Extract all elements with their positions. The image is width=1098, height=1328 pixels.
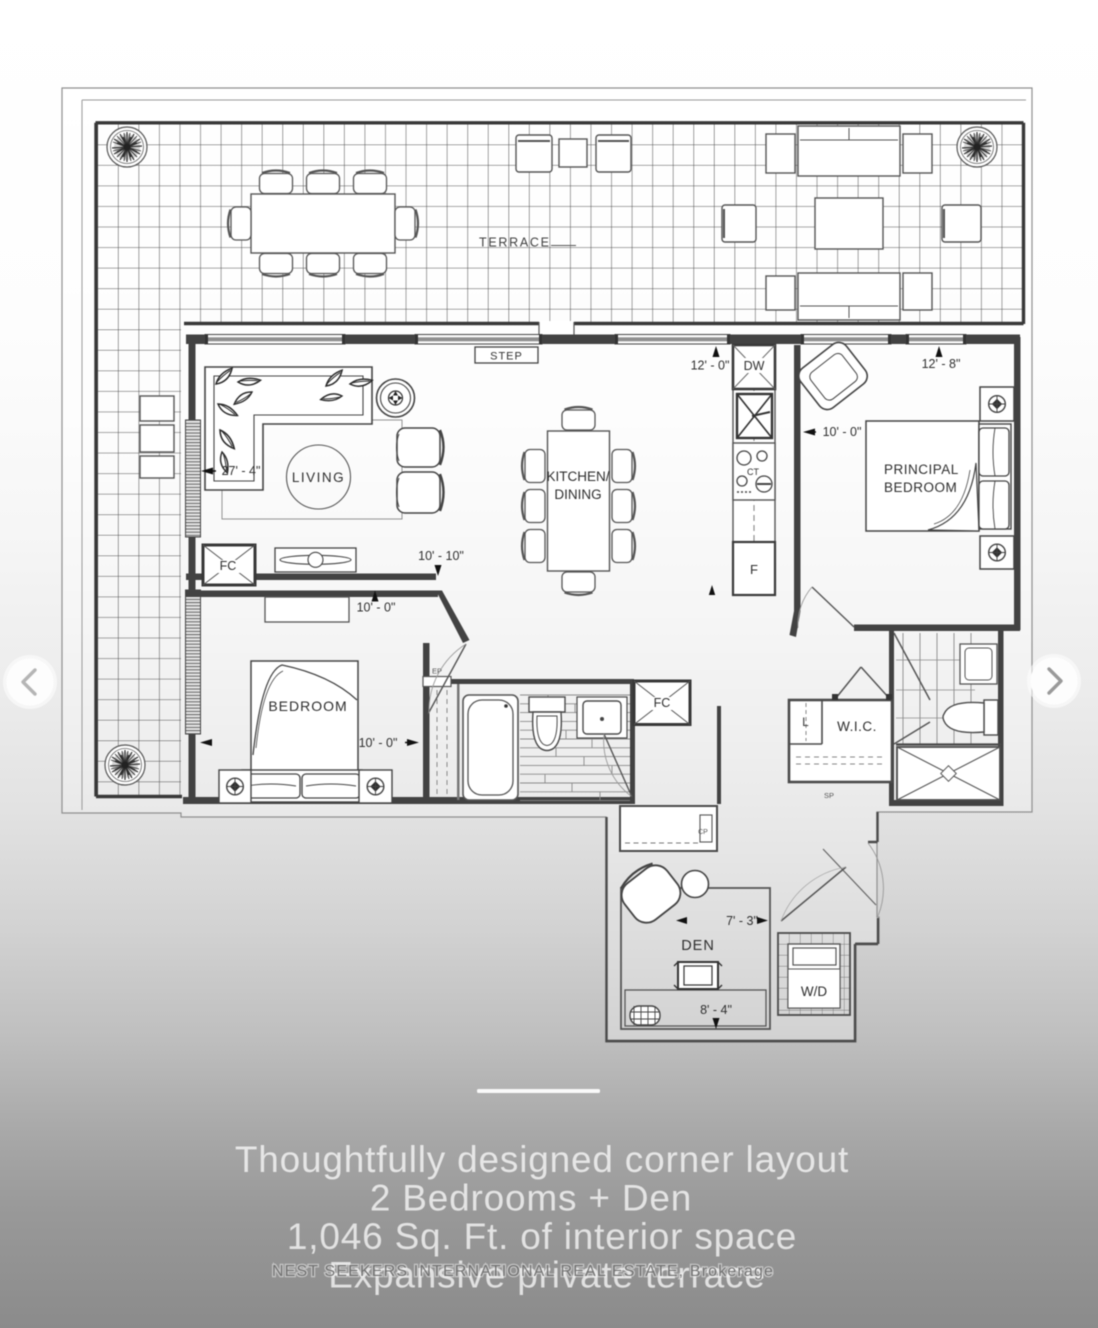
svg-text:KITCHEN/: KITCHEN/ <box>546 469 609 484</box>
svg-text:27' - 4": 27' - 4" <box>222 464 261 478</box>
svg-text:LIVING: LIVING <box>292 470 345 485</box>
svg-text:STEP: STEP <box>490 351 523 363</box>
svg-text:2 Bedrooms + Den: 2 Bedrooms + Den <box>370 1178 692 1219</box>
svg-text:10' - 0": 10' - 0" <box>359 736 398 750</box>
svg-text:L: L <box>802 717 809 729</box>
svg-text:W/D: W/D <box>801 984 827 999</box>
svg-text:DINING: DINING <box>554 487 601 502</box>
svg-text:F: F <box>750 562 758 577</box>
svg-text:BEDROOM: BEDROOM <box>268 698 347 714</box>
svg-text:NEST SEEKERS INTERNATIONAL REA: NEST SEEKERS INTERNATIONAL REAL ESTATE, … <box>272 1263 774 1280</box>
svg-text:12' - 0": 12' - 0" <box>691 359 730 373</box>
svg-text:12' - 8": 12' - 8" <box>922 357 961 371</box>
svg-text:10' - 0": 10' - 0" <box>357 601 396 615</box>
svg-text:PRINCIPAL: PRINCIPAL <box>884 462 959 477</box>
svg-text:FC: FC <box>220 559 237 573</box>
svg-text:1,046 Sq. Ft. of interior spac: 1,046 Sq. Ft. of interior space <box>287 1216 797 1257</box>
svg-text:CT: CT <box>747 467 759 477</box>
svg-text:CP: CP <box>698 829 708 836</box>
svg-text:SP: SP <box>824 791 834 800</box>
svg-text:W.I.C.: W.I.C. <box>837 719 877 734</box>
svg-text:10' - 10": 10' - 10" <box>418 549 464 563</box>
svg-text:Thoughtfully designed corner l: Thoughtfully designed corner layout <box>235 1139 849 1180</box>
svg-text:7' - 3": 7' - 3" <box>726 914 758 928</box>
svg-text:DW: DW <box>744 359 765 373</box>
svg-text:EP: EP <box>432 667 442 676</box>
svg-text:FC: FC <box>654 696 671 710</box>
svg-text:8' - 4": 8' - 4" <box>700 1003 732 1017</box>
svg-text:10' - 0": 10' - 0" <box>823 425 862 439</box>
svg-text:TERRACE: TERRACE <box>479 236 551 250</box>
svg-text:DEN: DEN <box>681 938 715 954</box>
svg-text:BEDROOM: BEDROOM <box>884 480 957 495</box>
